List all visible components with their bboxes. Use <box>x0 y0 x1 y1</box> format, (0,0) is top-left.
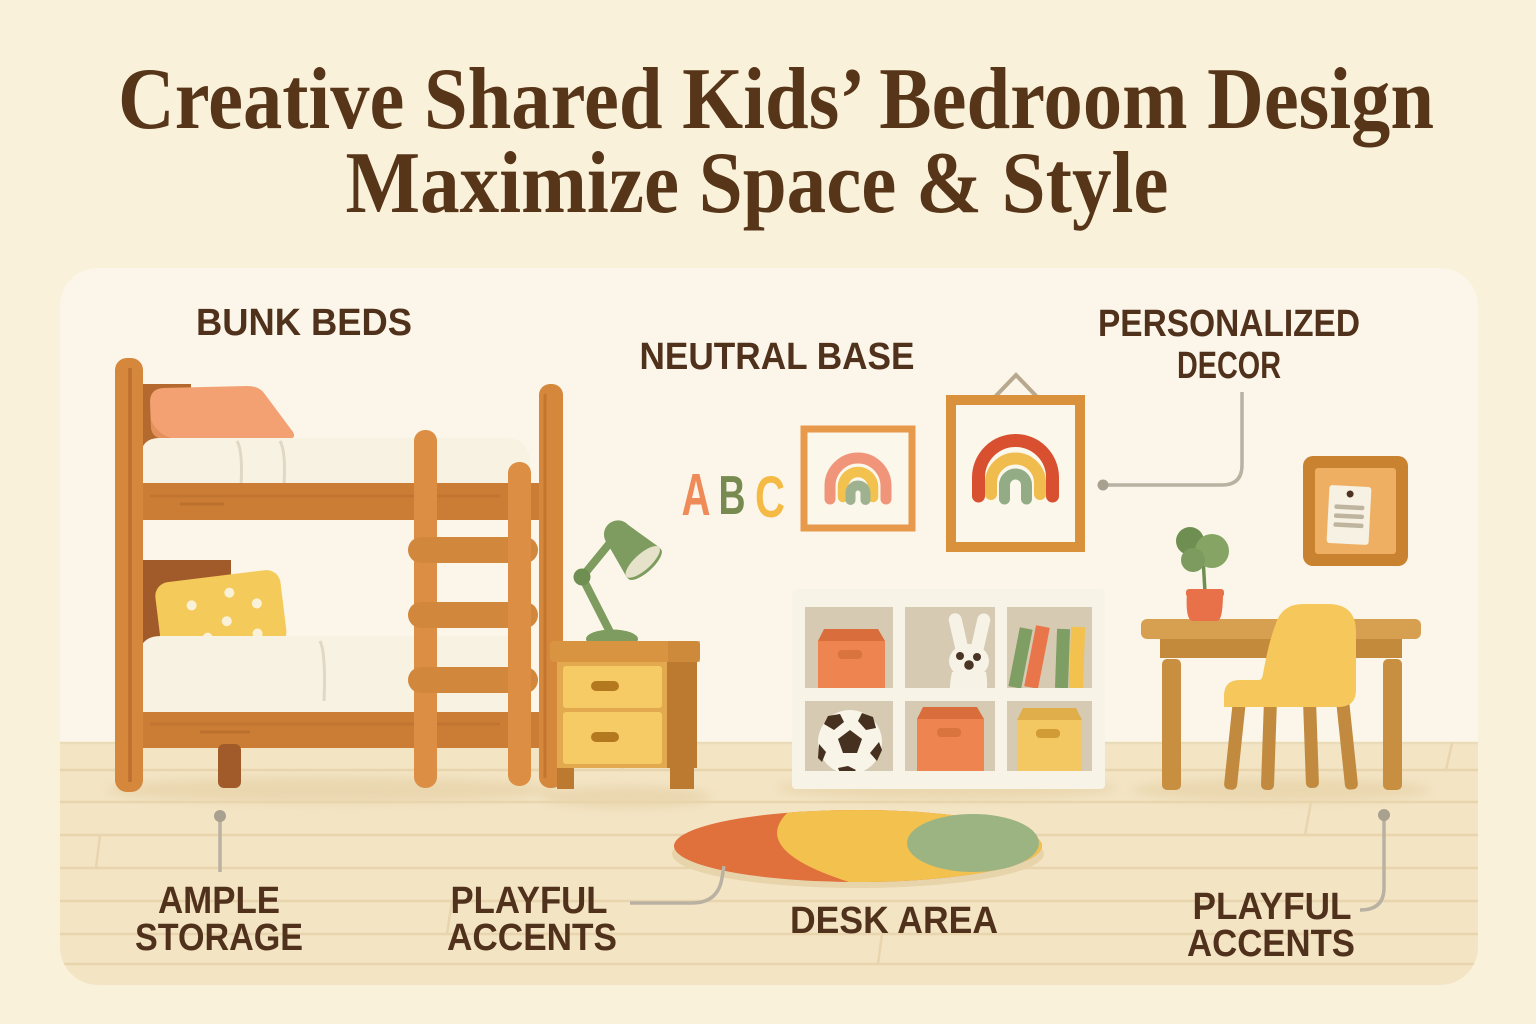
svg-text:Maximize Space & Style: Maximize Space & Style <box>346 135 1169 232</box>
svg-text:C: C <box>755 465 785 530</box>
svg-text:ACCENTS: ACCENTS <box>1187 923 1355 965</box>
svg-text:Creative Shared Kids’ Bedroom: Creative Shared Kids’ Bedroom Design <box>118 51 1434 148</box>
svg-text:B: B <box>719 464 746 526</box>
svg-text:NEUTRAL BASE: NEUTRAL BASE <box>640 336 915 378</box>
svg-text:A: A <box>682 462 711 528</box>
svg-text:PERSONALIZED: PERSONALIZED <box>1098 303 1360 345</box>
svg-text:PLAYFUL: PLAYFUL <box>1193 886 1352 928</box>
svg-text:DESK AREA: DESK AREA <box>790 900 998 942</box>
svg-text:STORAGE: STORAGE <box>135 917 303 959</box>
svg-text:BUNK BEDS: BUNK BEDS <box>196 302 412 344</box>
svg-text:AMPLE: AMPLE <box>158 880 280 922</box>
svg-text:PLAYFUL: PLAYFUL <box>451 880 608 922</box>
svg-text:ACCENTS: ACCENTS <box>447 917 617 959</box>
svg-text:DECOR: DECOR <box>1177 345 1281 387</box>
